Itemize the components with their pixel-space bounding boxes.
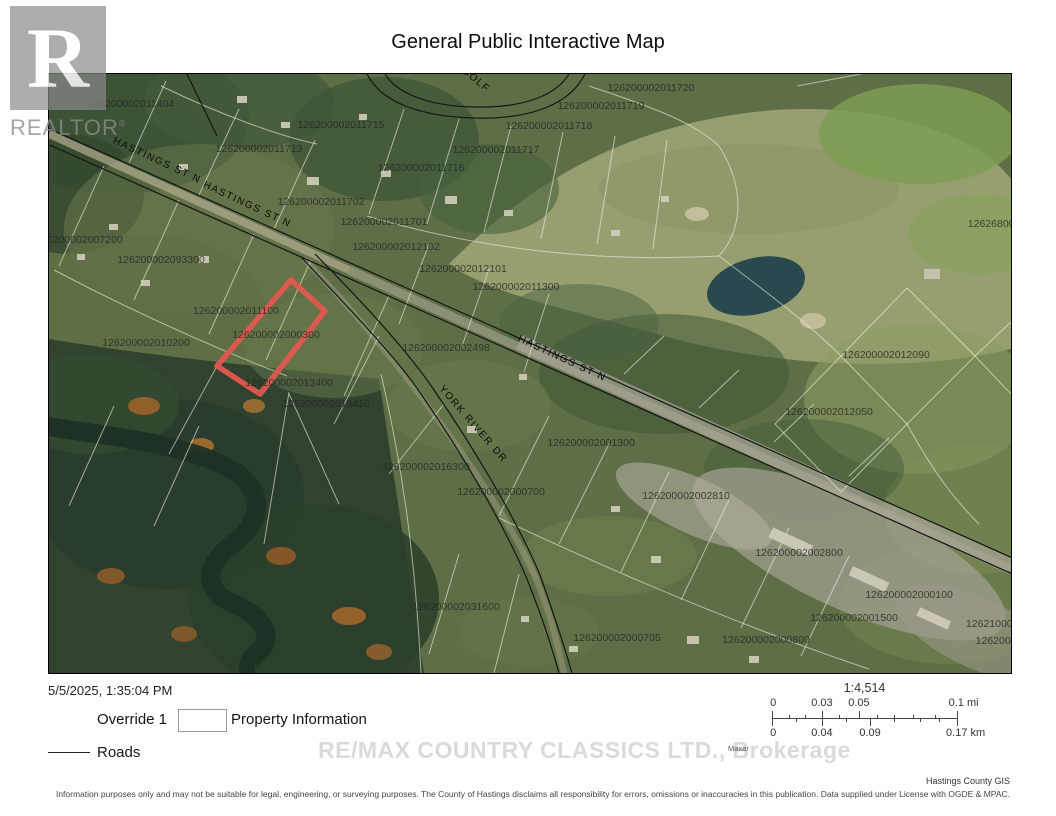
aerial-imagery: 1262000020114041262000020117131262000020… [49, 74, 1011, 673]
property-swatch [178, 709, 227, 732]
parcel-label: 126200002011717 [453, 144, 540, 156]
override-swatch [50, 719, 90, 724]
scale-tick [920, 718, 921, 722]
override-legend-label: Override 1 [97, 711, 167, 728]
scale-tick [859, 711, 860, 719]
imagery-credit: Maxar [728, 744, 749, 753]
parcel-label: 126200002011100 [193, 305, 279, 317]
brokerage-watermark: RE/MAX COUNTRY CLASSICS LTD., Brokerage [318, 737, 851, 764]
parcel-label: 126200002001500 [810, 612, 898, 624]
parcel-label: 126210002603 [966, 618, 1011, 630]
roads-legend-label: Roads [97, 744, 140, 761]
parcel-label: 126200002013410 [282, 398, 370, 410]
scale-ratio: 1:4,514 [772, 681, 957, 695]
parcel-label: 126200002011718 [506, 120, 593, 132]
parcel-label: 126200002012101 [419, 263, 507, 275]
scale-miles-labels: 00.030.050.1 mi [772, 697, 957, 709]
scale-ruler [772, 711, 957, 727]
parcel-label: 126200002001300 [547, 437, 635, 449]
parcel-label: 126200002012090 [842, 349, 930, 361]
parcel-label: 126200002007200 [49, 234, 123, 246]
parcel-label: 126200002013400 [245, 377, 333, 389]
parcel-label: 126200002002810 [642, 490, 730, 502]
scale-tick [839, 715, 840, 719]
map-canvas[interactable]: 1262000020114041262000020117131262000020… [48, 73, 1012, 674]
scale-tick [805, 715, 806, 719]
scale-tick [913, 715, 914, 719]
scale-tick [846, 718, 847, 722]
parcel-label: 126200002011702 [278, 196, 365, 208]
parcel-label: 126200002011701 [341, 216, 428, 228]
scale-tick-label: 0.09 [859, 727, 880, 739]
scale-tick-label: 0 [770, 697, 776, 709]
parcel-label: 126200002012050 [785, 406, 873, 418]
parcel-label: 126200002011719 [558, 100, 645, 112]
parcel-label: 126200002011300 [473, 281, 560, 293]
map-timestamp: 5/5/2025, 1:35:04 PM [48, 683, 172, 698]
scale-tick [939, 718, 940, 722]
disclaimer-text: Information purposes only and may not be… [56, 789, 1010, 799]
scale-tick [789, 715, 790, 719]
page: General Public Interactive Map R REALTOR… [0, 0, 1056, 816]
parcel-label: 126200002031600 [412, 601, 500, 613]
parcel-label: 126200002011404 [88, 98, 175, 110]
page-title: General Public Interactive Map [0, 31, 1056, 54]
parcel-label: 126200002011720 [608, 82, 695, 94]
parcel-label: 12620002 [976, 635, 1011, 647]
parcel-label: 126200002012102 [352, 241, 440, 253]
scale-tick [877, 715, 878, 719]
scale-tick [870, 718, 871, 726]
parcel-label: 126200002000800 [722, 634, 810, 646]
parcel-label: 126200002000705 [573, 632, 661, 644]
scale-tick [822, 718, 823, 726]
parcel-label: 126200002011713 [216, 143, 303, 155]
scale-tick [894, 718, 895, 722]
parcel-label: 126200002000100 [865, 589, 953, 601]
roads-swatch [48, 752, 90, 753]
gis-credit: Hastings County GIS [926, 776, 1010, 786]
parcel-label: 126200002011716 [378, 162, 465, 174]
scale-tick-label: 0.17 km [946, 727, 985, 739]
scale-tick-label: 0.05 [848, 697, 869, 709]
parcel-label: 126200002002800 [755, 547, 843, 559]
scale-tick [957, 718, 958, 726]
parcel-label: 126200002002498 [402, 342, 490, 354]
property-legend-label: Property Information [231, 711, 367, 728]
scale-tick-label: 0.1 mi [949, 697, 979, 709]
parcel-label: 126200002016300 [382, 461, 470, 473]
parcel-label: 126200002010200 [102, 337, 190, 349]
parcel-label: 126200002011715 [298, 119, 385, 131]
scale-tick [796, 718, 797, 722]
parcel-label: 1262680024 [968, 218, 1011, 230]
scale-tick [772, 718, 773, 726]
parcel-label: 126200002093300 [117, 254, 205, 266]
scale-tick-label: 0.03 [811, 697, 832, 709]
parcel-label: 126200002000700 [457, 486, 545, 498]
parcel-label: 126200002000300 [232, 329, 320, 341]
scale-tick [935, 715, 936, 719]
